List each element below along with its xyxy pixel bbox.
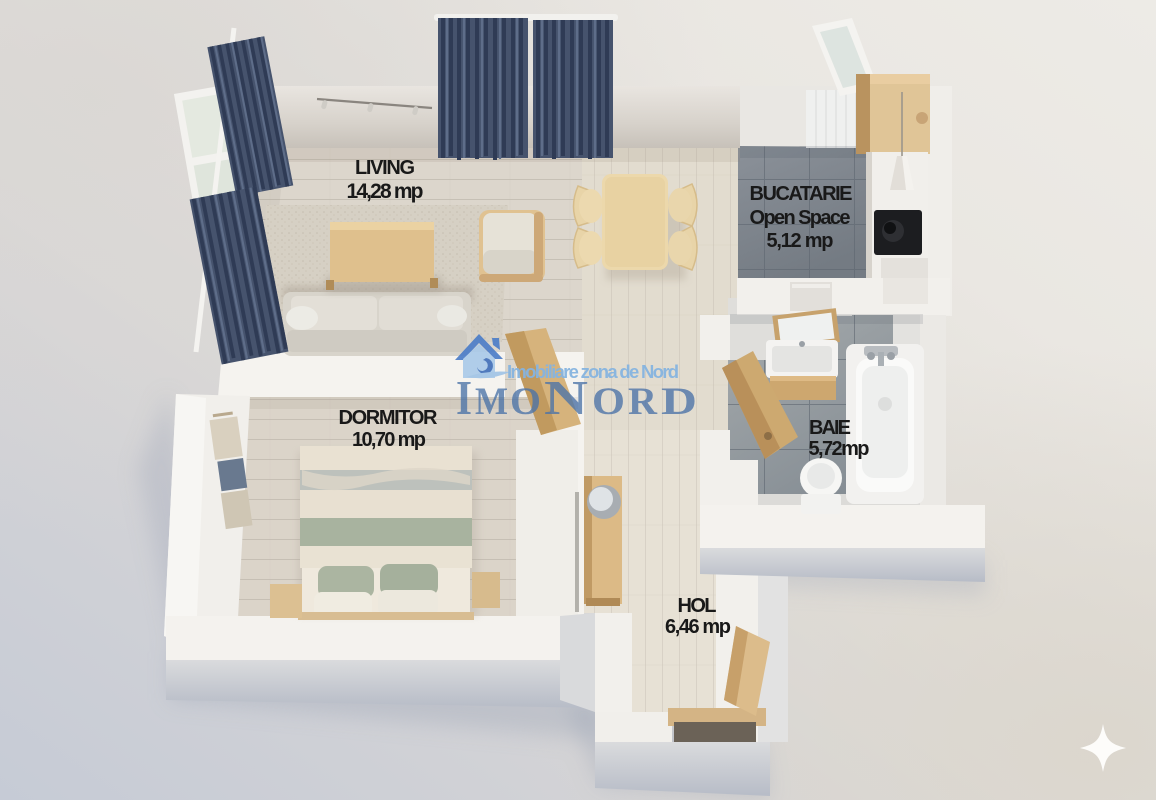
svg-text:5,12 mp: 5,12 mp [767,230,834,252]
svg-text:I: I [456,370,472,425]
svg-text:5,72mp: 5,72mp [809,438,870,460]
svg-text:D: D [661,380,697,423]
svg-text:14,28 mp: 14,28 mp [347,180,424,203]
svg-text:DORMITOR: DORMITOR [339,407,439,429]
svg-text:BAIE: BAIE [809,417,851,439]
svg-text:10,70 mp: 10,70 mp [352,429,426,451]
svg-text:LIVING: LIVING [355,157,415,179]
svg-text:O: O [510,380,541,423]
svg-text:6,46 mp: 6,46 mp [665,616,731,638]
svg-text:M: M [475,380,508,423]
svg-text:Imobiliare zona de Nord: Imobiliare zona de Nord [507,361,679,382]
svg-text:BUCATARIE: BUCATARIE [750,183,853,205]
svg-text:Open Space: Open Space [750,207,851,229]
svg-text:HOL: HOL [678,595,717,617]
svg-text:R: R [628,380,658,423]
svg-text:O: O [592,380,625,423]
svg-text:N: N [544,370,588,425]
